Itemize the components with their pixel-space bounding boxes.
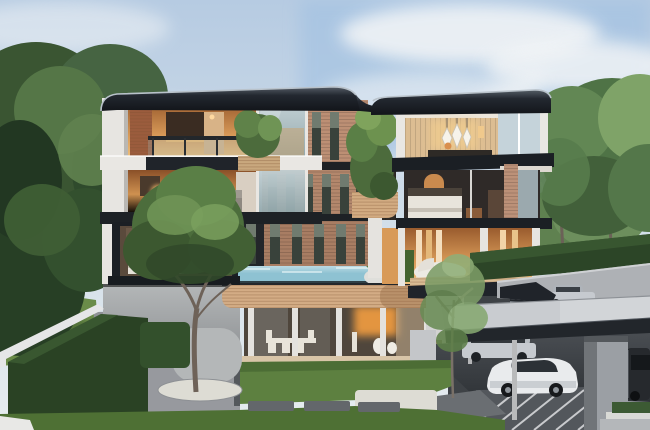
pendant-light [210,115,215,120]
steel-post [512,340,517,420]
garden-left [234,110,282,171]
dark-slab [396,218,552,229]
indoor-plant [404,250,414,282]
curb [606,412,650,420]
kitchen-glow [354,306,398,336]
white-column [368,218,382,278]
dresser [488,190,504,220]
architectural-rendering [0,0,650,430]
wall-sconce [478,126,484,138]
minivan [627,348,650,401]
table-flowers [445,143,452,150]
stepping-stones [248,401,400,412]
scene-canvas [0,0,650,430]
hedge-strip [612,402,650,413]
terrace-floor [396,108,548,159]
sports-car-canopy [512,360,559,372]
clipped-hedge-block [140,322,190,368]
bedroom-floor [404,164,540,222]
sports-car [487,358,578,397]
corner-glass [518,170,538,220]
